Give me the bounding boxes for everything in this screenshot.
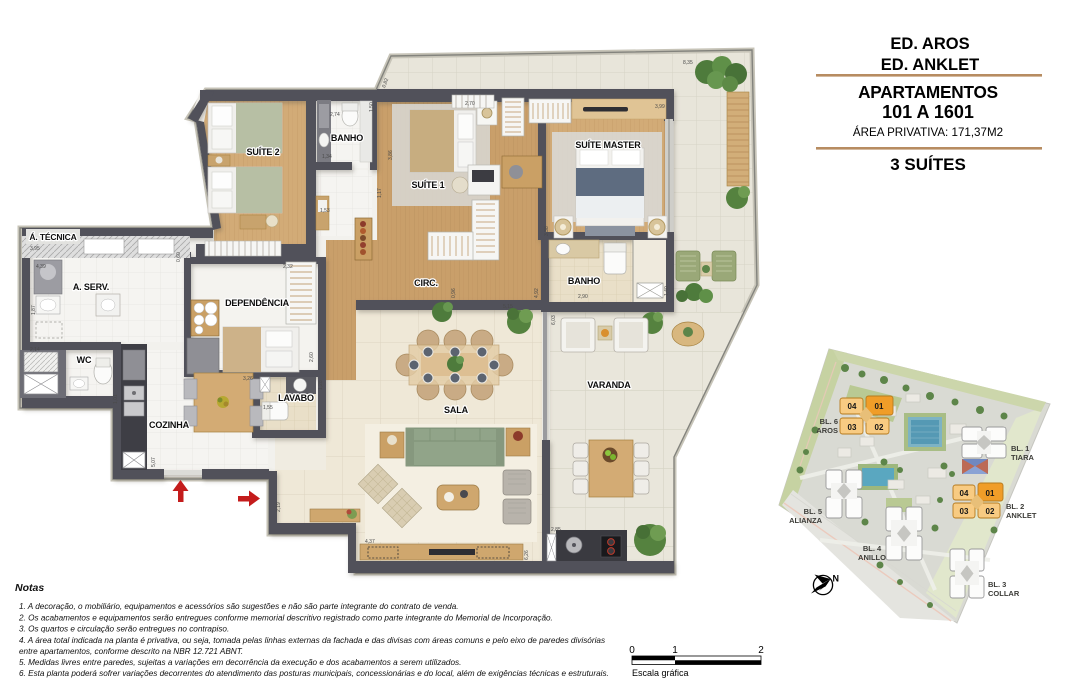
svg-text:BL. 1: BL. 1: [1011, 444, 1029, 453]
svg-text:2,70: 2,70: [465, 101, 475, 107]
svg-text:03: 03: [848, 423, 857, 432]
svg-text:2. Os acabamentos e equipament: 2. Os acabamentos e equipamentos serão e…: [18, 614, 553, 623]
svg-text:2,32: 2,32: [283, 264, 293, 270]
svg-text:0,96: 0,96: [451, 288, 457, 298]
svg-text:2,74: 2,74: [330, 112, 340, 118]
svg-text:1,87: 1,87: [31, 305, 37, 315]
svg-text:04: 04: [848, 402, 857, 411]
svg-text:1,28: 1,28: [318, 380, 324, 390]
svg-text:6,03: 6,03: [551, 315, 557, 325]
svg-text:SUÍTE MASTER: SUÍTE MASTER: [575, 140, 641, 150]
svg-text:02: 02: [875, 423, 884, 432]
svg-text:3. Os quartos e circulação ser: 3. Os quartos e circulação serão entregu…: [19, 625, 229, 634]
svg-text:2,90: 2,90: [578, 294, 588, 300]
svg-text:COLLAR: COLLAR: [988, 589, 1020, 598]
svg-text:1,53: 1,53: [320, 208, 330, 214]
svg-text:ALIANZA: ALIANZA: [789, 516, 822, 525]
svg-text:5,15: 5,15: [503, 304, 513, 310]
svg-text:4. A área total indicada na pl: 4. A área total indicada na planta é pri…: [19, 636, 605, 645]
svg-text:Á. TÉCNICA: Á. TÉCNICA: [29, 232, 76, 242]
svg-text:1: 1: [672, 645, 678, 656]
svg-text:3 SUÍTES: 3 SUÍTES: [890, 155, 966, 174]
svg-text:1,17: 1,17: [377, 188, 383, 198]
svg-text:3,86: 3,86: [388, 150, 394, 160]
svg-text:2,19: 2,19: [276, 502, 282, 512]
svg-text:ANILLO: ANILLO: [858, 553, 886, 562]
svg-text:5,07: 5,07: [151, 457, 157, 467]
svg-text:3,38: 3,38: [544, 226, 550, 236]
svg-text:APARTAMENTOS: APARTAMENTOS: [858, 82, 998, 102]
svg-text:8,35: 8,35: [683, 60, 693, 66]
svg-text:101 A 1601: 101 A 1601: [882, 102, 974, 122]
svg-text:SUÍTE 1: SUÍTE 1: [412, 180, 445, 190]
svg-text:6. Esta planta poderá sofrer v: 6. Esta planta poderá sofrer variações d…: [19, 669, 609, 678]
svg-text:0,60: 0,60: [176, 252, 182, 262]
svg-text:N: N: [833, 574, 840, 584]
svg-text:2,85: 2,85: [551, 527, 561, 533]
svg-text:CIRC.: CIRC.: [414, 278, 438, 288]
svg-text:AROS: AROS: [816, 426, 838, 435]
svg-text:WC: WC: [77, 355, 92, 365]
svg-text:4,92: 4,92: [534, 288, 540, 298]
svg-text:1,01: 1,01: [113, 394, 119, 404]
svg-text:ÁREA PRIVATIVA: 171,37M2: ÁREA PRIVATIVA: 171,37M2: [853, 126, 1003, 139]
svg-text:1,34: 1,34: [322, 154, 332, 160]
svg-text:ED. AROS: ED. AROS: [890, 35, 969, 53]
svg-text:ANKLET: ANKLET: [1006, 511, 1037, 520]
svg-text:BL. 5: BL. 5: [804, 507, 822, 516]
svg-text:BL. 4: BL. 4: [863, 544, 882, 553]
svg-text:Notas: Notas: [15, 582, 44, 594]
svg-text:SUÍTE 2: SUÍTE 2: [247, 147, 280, 157]
svg-text:2,60: 2,60: [309, 352, 315, 362]
svg-text:BL. 6: BL. 6: [820, 417, 838, 426]
svg-text:COZINHA: COZINHA: [149, 420, 190, 430]
svg-text:04: 04: [960, 489, 969, 498]
svg-text:ED. ANKLET: ED. ANKLET: [881, 56, 979, 74]
svg-text:2,14: 2,14: [30, 347, 40, 353]
svg-text:BANHO: BANHO: [331, 133, 363, 143]
svg-text:1,40: 1,40: [664, 286, 670, 296]
svg-text:BL. 3: BL. 3: [988, 580, 1006, 589]
svg-text:DEPENDÊNCIA: DEPENDÊNCIA: [225, 297, 290, 308]
svg-text:LAVABO: LAVABO: [278, 393, 314, 403]
svg-text:TIARA: TIARA: [1011, 453, 1034, 462]
svg-text:02: 02: [986, 507, 995, 516]
svg-text:0: 0: [629, 645, 635, 656]
svg-text:Escala gráfica: Escala gráfica: [632, 668, 689, 678]
svg-text:1,55: 1,55: [263, 405, 273, 411]
svg-text:A. SERV.: A. SERV.: [73, 282, 109, 292]
svg-text:BANHO: BANHO: [568, 276, 600, 286]
svg-text:BL. 2: BL. 2: [1006, 502, 1024, 511]
svg-text:entre apartamentos, conforme d: entre apartamentos, conforme descrito na…: [19, 647, 243, 656]
svg-text:01: 01: [986, 489, 995, 498]
svg-text:SALA: SALA: [444, 405, 469, 415]
svg-text:2: 2: [758, 645, 764, 656]
svg-text:4,37: 4,37: [365, 539, 375, 545]
svg-text:1. A decoração, o mobiliário,: 1. A decoração, o mobiliário, equipament…: [19, 602, 459, 611]
svg-text:3,26: 3,26: [243, 376, 253, 382]
svg-text:03: 03: [960, 507, 969, 516]
svg-text:01: 01: [875, 402, 884, 411]
svg-text:3,95: 3,95: [30, 246, 40, 252]
svg-text:6,26: 6,26: [524, 550, 530, 560]
svg-text:VARANDA: VARANDA: [587, 380, 631, 390]
svg-text:3,99: 3,99: [655, 104, 665, 110]
svg-text:4,39: 4,39: [36, 264, 46, 270]
svg-text:1,50: 1,50: [369, 102, 375, 112]
svg-text:5. Medidas livres entre parede: 5. Medidas livres entre paredes, sujeita…: [19, 658, 461, 667]
